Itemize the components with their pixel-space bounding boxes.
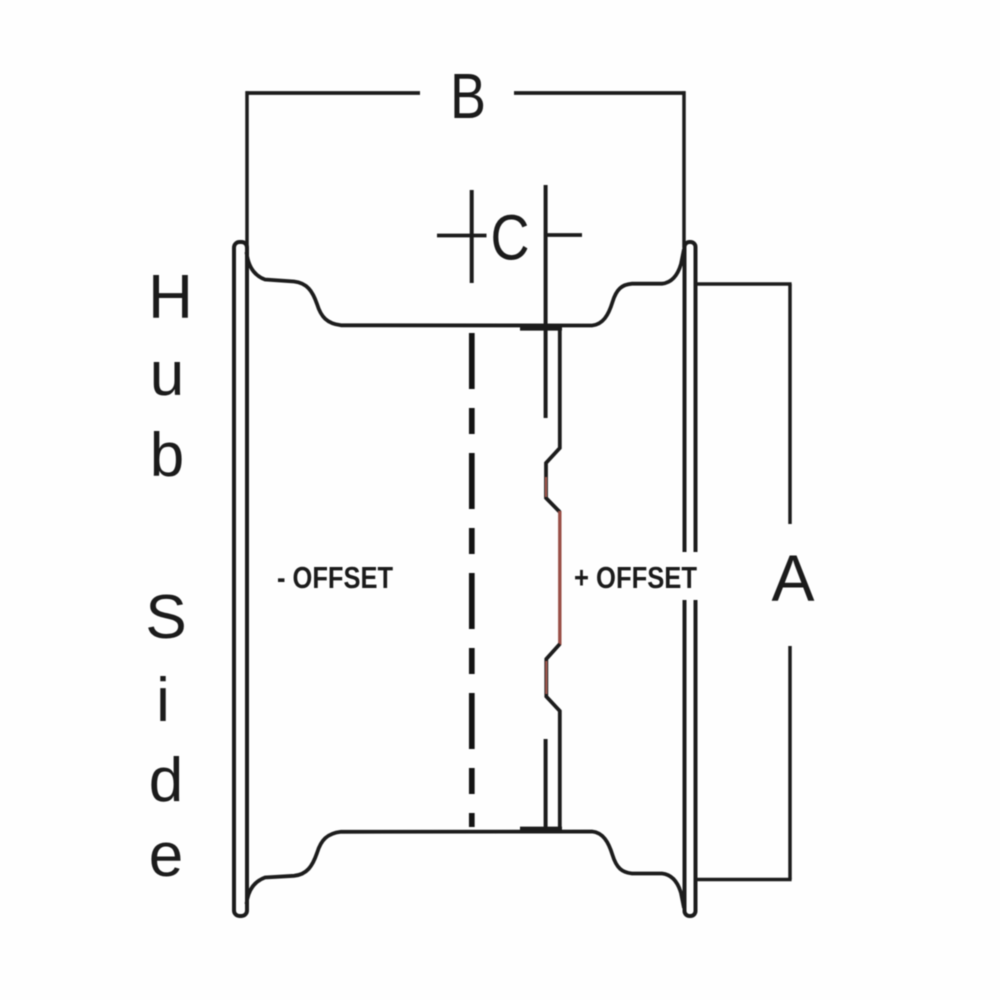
svg-text:S: S bbox=[145, 583, 186, 652]
svg-text:d: d bbox=[149, 746, 183, 815]
svg-text:+ OFFSET: + OFFSET bbox=[574, 560, 697, 595]
svg-text:i: i bbox=[156, 666, 170, 735]
svg-text:H: H bbox=[148, 263, 193, 332]
svg-text:A: A bbox=[772, 541, 815, 615]
svg-text:B: B bbox=[450, 60, 486, 132]
svg-text:u: u bbox=[150, 340, 184, 409]
svg-text:C: C bbox=[491, 202, 530, 274]
svg-text:e: e bbox=[149, 821, 183, 890]
svg-text:- OFFSET: - OFFSET bbox=[277, 560, 393, 595]
svg-text:b: b bbox=[150, 421, 184, 490]
